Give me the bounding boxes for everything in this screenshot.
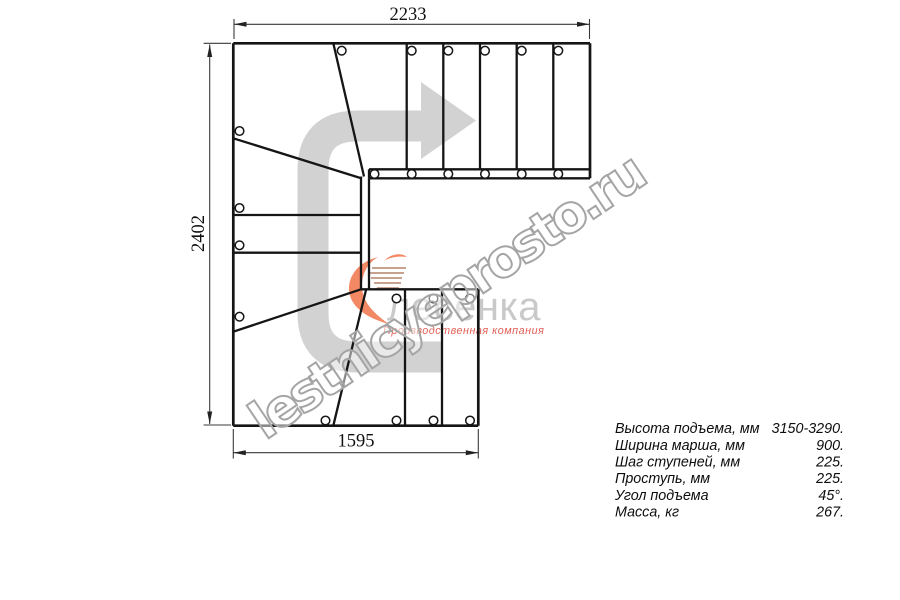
spec-value: 267.	[815, 505, 844, 521]
spec-label: Ширина марша, мм	[615, 438, 745, 454]
spec-label: Высота подъема, мм	[615, 421, 760, 437]
screw-hole	[370, 170, 379, 179]
screw-hole	[517, 46, 526, 55]
spec-label: Шаг ступеней, мм	[615, 455, 740, 471]
spec-value: 900.	[816, 438, 844, 454]
dimension-top-value: 2233	[390, 5, 427, 25]
spec-value: 225.	[815, 455, 844, 471]
screw-hole	[517, 170, 526, 179]
screw-hole	[235, 127, 244, 136]
screw-hole	[466, 416, 475, 425]
screw-hole	[554, 170, 563, 179]
screw-hole	[337, 46, 346, 55]
screw-hole	[235, 312, 244, 321]
dimension-left-value: 2402	[189, 215, 209, 252]
spec-label: Масса, кг	[615, 505, 679, 521]
dimension-left: 2402	[189, 43, 231, 425]
screw-hole	[235, 241, 244, 250]
screw-hole	[481, 170, 490, 179]
screw-hole	[235, 204, 244, 213]
spec-table: Высота подъема, мм 3150-3290. Ширина мар…	[614, 421, 844, 521]
screw-hole	[554, 46, 563, 55]
staircase-plan-page: лесенка Производственная компания	[0, 0, 900, 600]
screw-hole	[392, 416, 401, 425]
staircase-plan-svg: лесенка Производственная компания	[0, 0, 900, 600]
spec-value: 3150-3290.	[772, 421, 844, 437]
spec-value: 45°.	[818, 488, 844, 504]
dimension-top: 2233	[234, 5, 590, 39]
screw-hole	[407, 46, 416, 55]
spec-value: 225.	[815, 471, 844, 487]
screw-hole	[444, 46, 453, 55]
screw-hole	[444, 170, 453, 179]
screw-hole	[407, 170, 416, 179]
spec-label: Угол подъема	[614, 488, 709, 504]
screw-hole	[481, 46, 490, 55]
dimension-bottom-value: 1595	[338, 432, 375, 452]
direction-arrow-head	[421, 82, 476, 159]
spec-label: Проступь, мм	[615, 471, 710, 487]
screw-hole	[429, 416, 438, 425]
